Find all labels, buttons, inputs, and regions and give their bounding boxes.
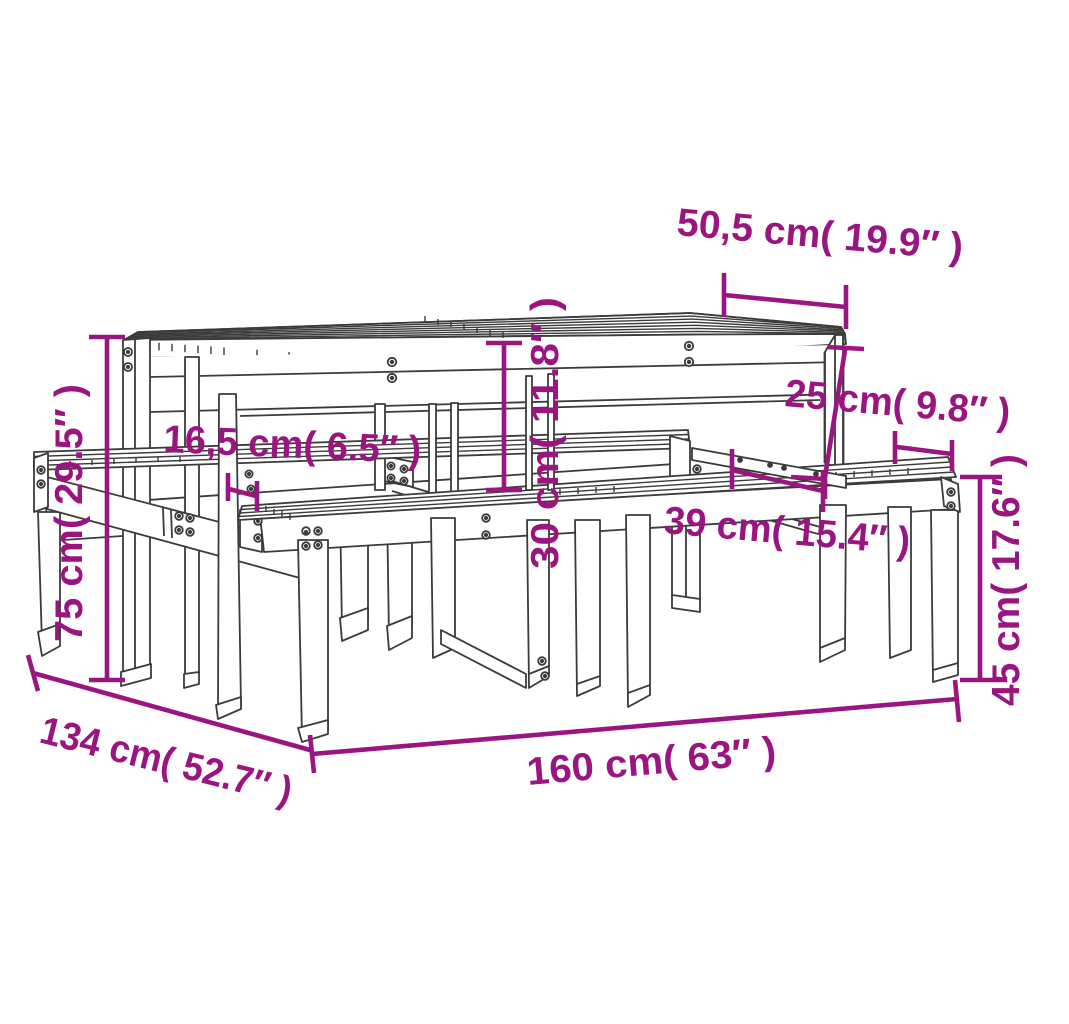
svg-text:45 cm( 17.6″ ): 45 cm( 17.6″ )	[985, 454, 1028, 706]
svg-text:75 cm( 29.5″ ): 75 cm( 29.5″ )	[48, 384, 91, 642]
svg-text:30 cm( 11.8″ ): 30 cm( 11.8″ )	[524, 297, 567, 569]
